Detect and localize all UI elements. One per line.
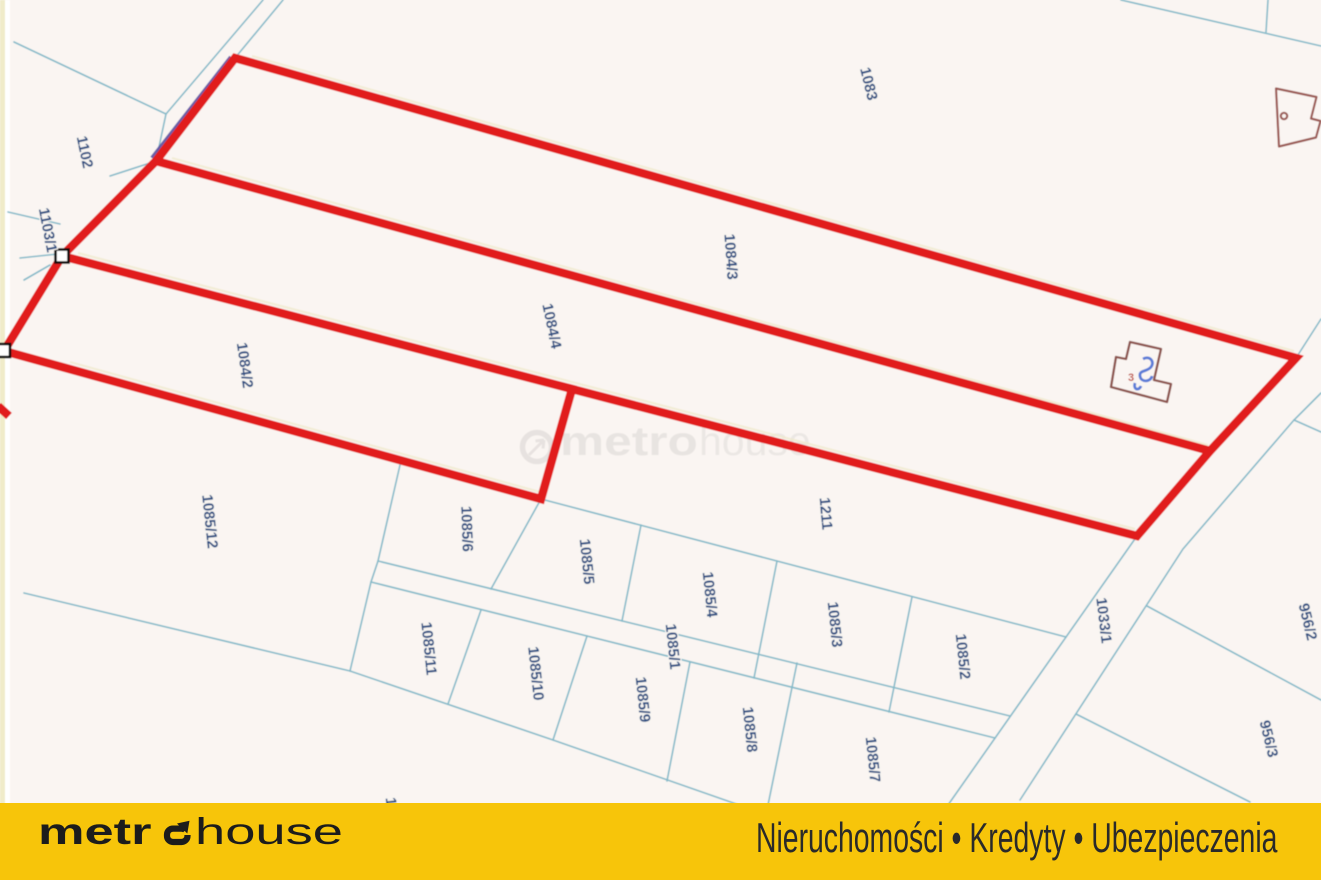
svg-text:1085/6: 1085/6 xyxy=(457,506,476,552)
svg-text:1211: 1211 xyxy=(816,497,836,531)
svg-text:metr: metr xyxy=(38,811,151,853)
svg-text:metro: metro xyxy=(560,418,698,464)
svg-text:house: house xyxy=(195,811,343,852)
svg-text:1084/3: 1084/3 xyxy=(720,233,740,280)
svg-text:Nieruchomości • Kredyty • Ubez: Nieruchomości • Kredyty • Ubezpieczenia xyxy=(756,815,1277,862)
svg-text:3: 3 xyxy=(1128,372,1134,384)
